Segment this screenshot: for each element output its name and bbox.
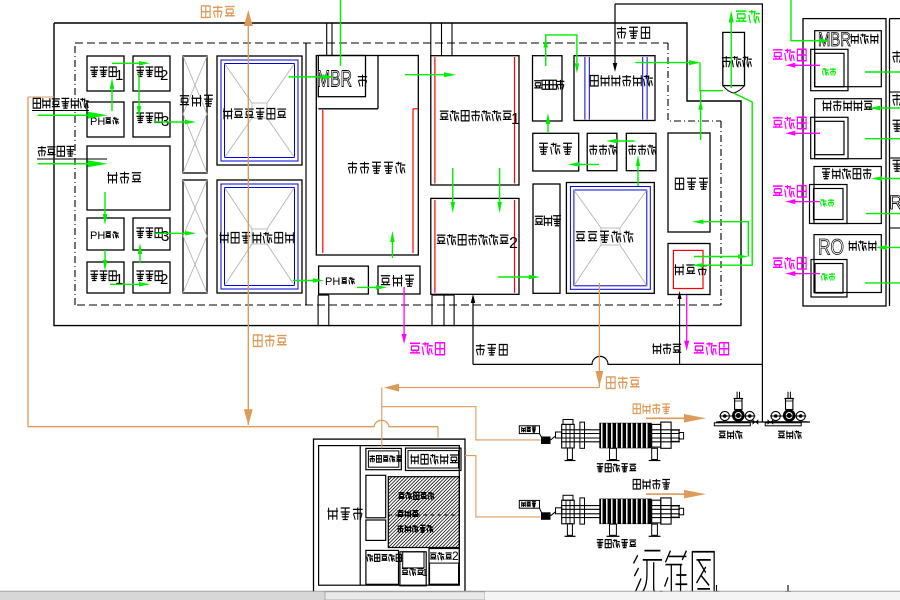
- svg-text:PH: PH: [90, 230, 105, 242]
- svg-text:2: 2: [509, 235, 518, 252]
- svg-text:1: 1: [115, 271, 123, 288]
- svg-text:1: 1: [511, 111, 520, 128]
- svg-text:3: 3: [161, 228, 169, 245]
- svg-text:2: 2: [160, 67, 168, 84]
- svg-text:2: 2: [452, 549, 459, 563]
- svg-text:R: R: [889, 193, 900, 214]
- svg-text:2: 2: [160, 271, 168, 288]
- svg-text:RO: RO: [818, 235, 844, 260]
- svg-text:PH: PH: [325, 276, 340, 288]
- svg-text:1: 1: [115, 67, 123, 84]
- svg-text:MBR: MBR: [317, 66, 352, 92]
- svg-text:1: 1: [422, 568, 428, 579]
